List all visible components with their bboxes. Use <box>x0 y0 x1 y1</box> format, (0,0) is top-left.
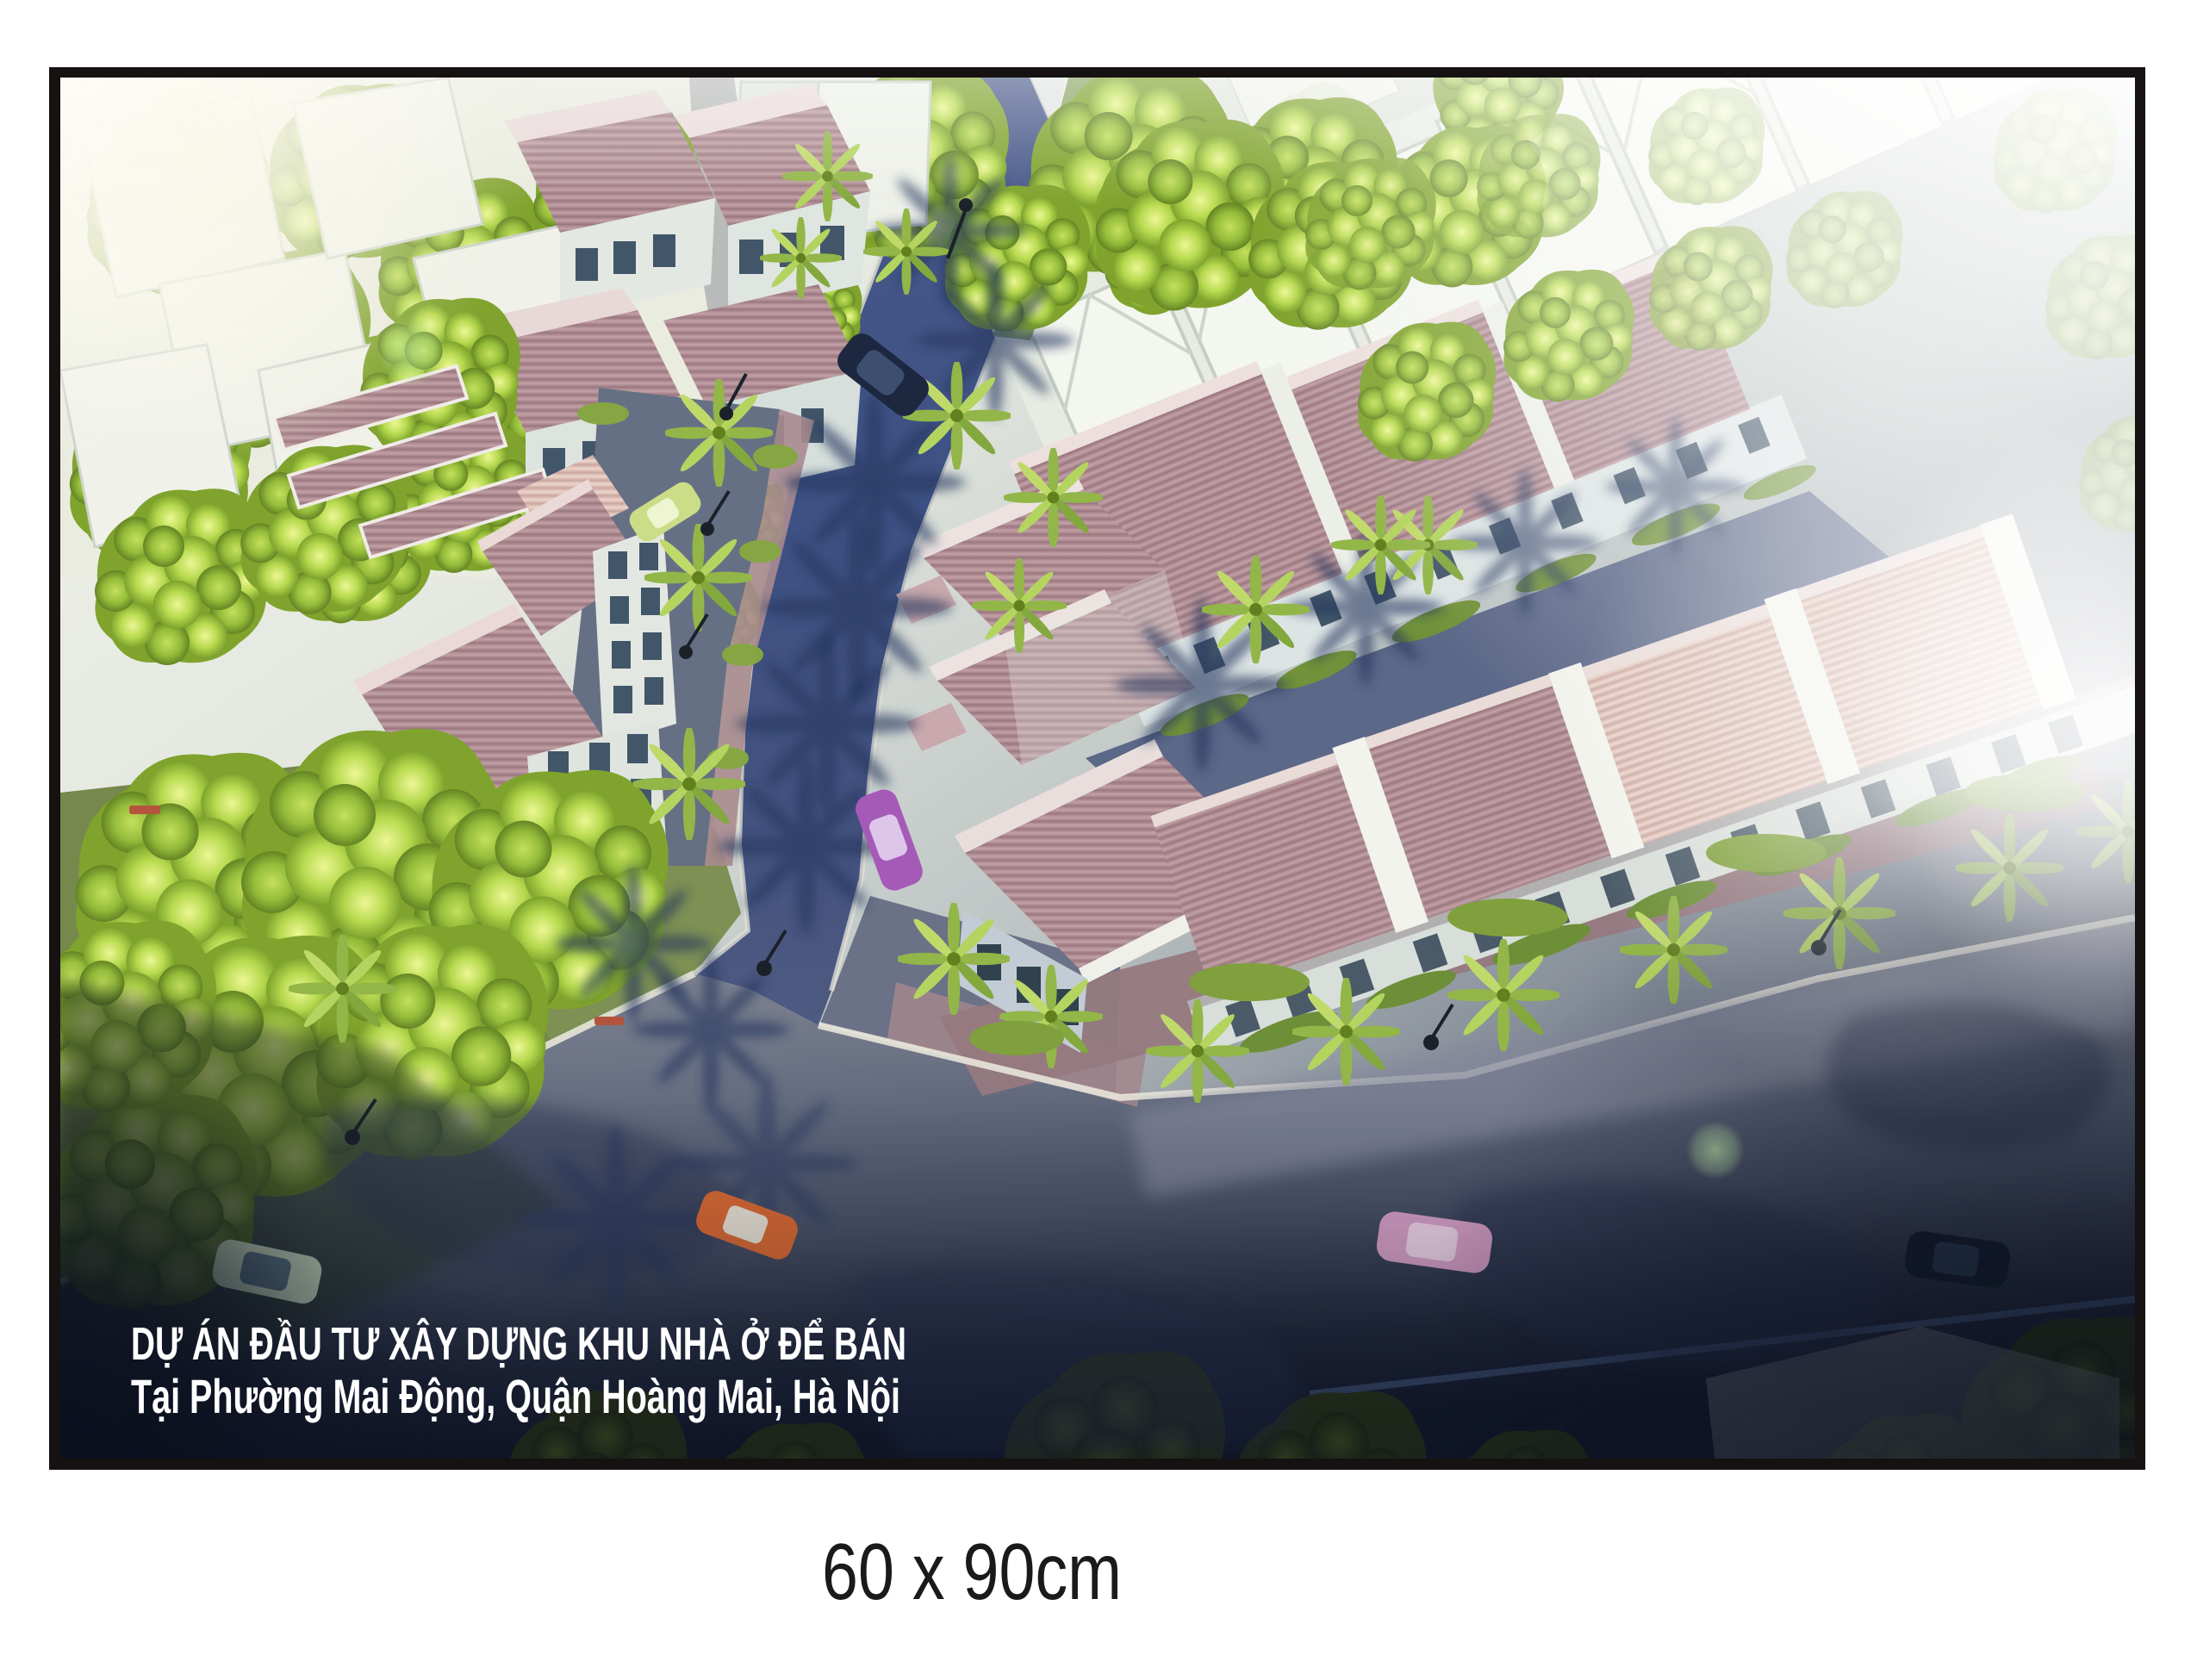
svg-text:60 x 90cm: 60 x 90cm <box>822 1527 1122 1616</box>
svg-text:DỰ ÁN ĐẦU TƯ XÂY DỰNG KHU NHÀ: DỰ ÁN ĐẦU TƯ XÂY DỰNG KHU NHÀ Ở ĐỂ BÁN <box>131 1317 906 1370</box>
svg-text:Tại Phường Mai Động, Quận Hoàn: Tại Phường Mai Động, Quận Hoàng Mai, Hà … <box>131 1369 900 1423</box>
